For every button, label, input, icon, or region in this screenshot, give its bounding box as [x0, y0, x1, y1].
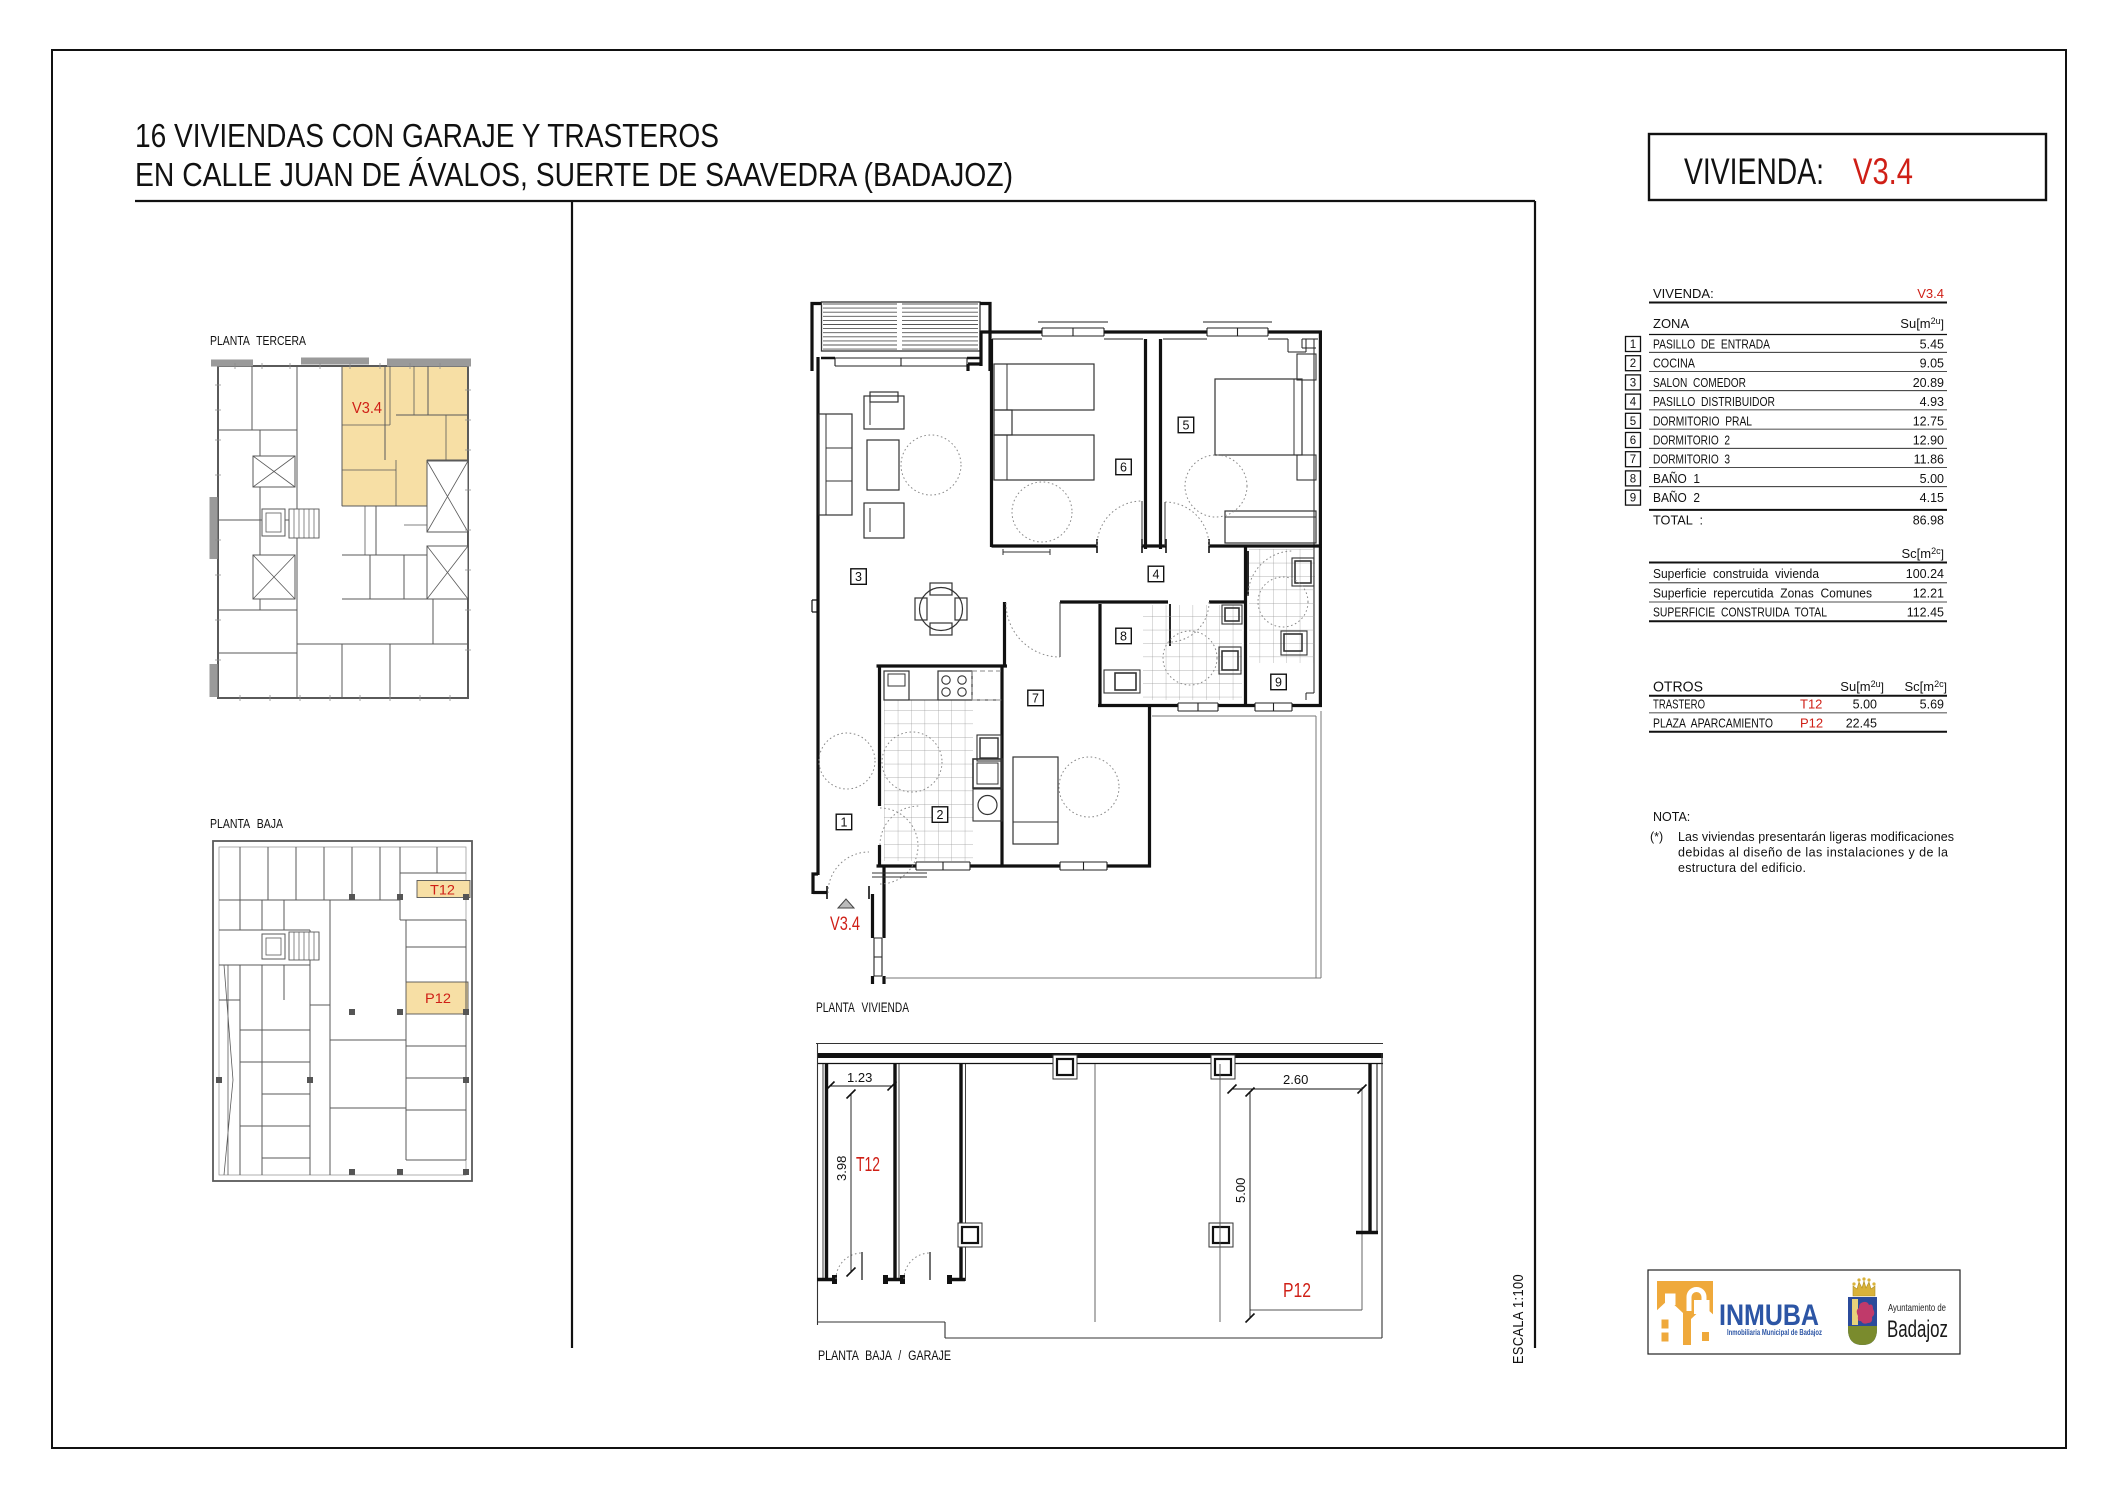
svg-text:7: 7	[1032, 692, 1039, 706]
svg-text:TOTAL :: TOTAL :	[1653, 513, 1703, 527]
svg-text:Badajoz: Badajoz	[1887, 1316, 1948, 1343]
svg-text:PLANTA BAJA: PLANTA BAJA	[210, 817, 284, 831]
svg-text:86.98: 86.98	[1913, 513, 1944, 527]
svg-text:1: 1	[1630, 339, 1636, 351]
svg-text:12.75: 12.75	[1913, 414, 1944, 428]
svg-text:TRASTERO: TRASTERO	[1653, 698, 1705, 712]
svg-text:20.89: 20.89	[1913, 376, 1944, 390]
svg-text:ESCALA 1:100: ESCALA 1:100	[1511, 1274, 1527, 1364]
svg-text:1.23: 1.23	[847, 1070, 872, 1085]
svg-text:Superficie repercutida Zonas: Superficie repercutida Zonas Comunes	[1653, 586, 1872, 600]
svg-text:5.45: 5.45	[1920, 338, 1944, 352]
svg-text:V3.4: V3.4	[830, 914, 860, 935]
svg-text:22.45: 22.45	[1846, 717, 1877, 731]
svg-text:COCINA: COCINA	[1653, 357, 1696, 371]
svg-text:DORMITORIO 2: DORMITORIO 2	[1653, 434, 1730, 448]
svg-text:16 VIVIENDAS CON GARAJE Y TRAS: 16 VIVIENDAS CON GARAJE Y TRASTEROS	[135, 118, 719, 155]
svg-text:2.60: 2.60	[1283, 1072, 1308, 1087]
svg-text:BAÑO 2: BAÑO 2	[1653, 491, 1700, 505]
svg-text:6: 6	[1120, 461, 1127, 475]
svg-text:5: 5	[1630, 416, 1636, 428]
svg-text:SUPERFICIE CONSTRUIDA TOTAL: SUPERFICIE CONSTRUIDA TOTAL	[1653, 606, 1827, 620]
svg-text:6: 6	[1630, 435, 1636, 447]
svg-text:estructura del edificio.: estructura del edificio.	[1678, 861, 1806, 875]
svg-text:V3.4: V3.4	[1853, 151, 1913, 192]
svg-text:5: 5	[1183, 419, 1190, 433]
svg-text:7: 7	[1630, 454, 1636, 466]
svg-text:9.05: 9.05	[1920, 357, 1944, 371]
svg-text:100.24: 100.24	[1906, 567, 1944, 581]
svg-text:8: 8	[1120, 630, 1127, 644]
svg-text:DORMITORIO 3: DORMITORIO 3	[1653, 453, 1730, 467]
svg-text:P12: P12	[1800, 716, 1823, 731]
svg-text:VIVIENDA:: VIVIENDA:	[1684, 151, 1824, 192]
svg-text:NOTA:: NOTA:	[1653, 810, 1690, 824]
svg-text:V3.4: V3.4	[1917, 286, 1944, 301]
svg-text:PASILLO DE ENTRADA: PASILLO DE ENTRADA	[1653, 338, 1771, 352]
svg-text:OTROS: OTROS	[1653, 679, 1703, 696]
svg-text:8: 8	[1630, 473, 1636, 485]
svg-text:T12: T12	[856, 1154, 880, 1176]
svg-text:debidas al diseño de las: debidas al diseño de las instalaciones y…	[1678, 846, 1948, 860]
svg-text:4.93: 4.93	[1920, 395, 1944, 409]
svg-text:V3.4: V3.4	[352, 400, 382, 417]
svg-text:12.21: 12.21	[1913, 586, 1944, 600]
svg-text:2: 2	[1630, 358, 1636, 370]
svg-text:Inmobiliaria Municipal de Bada: Inmobiliaria Municipal de Badajoz	[1727, 1328, 1822, 1337]
svg-text:SALON COMEDOR: SALON COMEDOR	[1653, 376, 1746, 390]
svg-text:Ayuntamiento de: Ayuntamiento de	[1888, 1302, 1946, 1314]
svg-text:9: 9	[1630, 493, 1636, 505]
svg-text:PLANTA BAJA / GARAJE: PLANTA BAJA / GARAJE	[818, 1348, 951, 1363]
svg-text:3.98: 3.98	[834, 1156, 849, 1181]
svg-text:5.00: 5.00	[1233, 1178, 1248, 1203]
svg-text:PASILLO DISTRIBUIDOR: PASILLO DISTRIBUIDOR	[1653, 395, 1775, 409]
svg-text:EN CALLE JUAN DE ÁVALOS, SUERT: EN CALLE JUAN DE ÁVALOS, SUERTE DE SAAVE…	[135, 157, 1013, 194]
svg-text:VIVENDA:: VIVENDA:	[1653, 286, 1714, 301]
svg-text:5.69: 5.69	[1920, 698, 1944, 712]
svg-text:Las viviendas presentarán l: Las viviendas presentarán ligeras modifi…	[1678, 830, 1954, 844]
svg-text:3: 3	[1630, 377, 1636, 389]
svg-text:4: 4	[1153, 568, 1160, 582]
svg-text:PLANTA TERCERA: PLANTA TERCERA	[210, 334, 307, 348]
svg-text:9: 9	[1275, 676, 1282, 690]
svg-text:BAÑO 1: BAÑO 1	[1653, 472, 1700, 486]
svg-text:PLANTA VIVIENDA: PLANTA VIVIENDA	[816, 1000, 909, 1015]
svg-text:T12: T12	[1800, 697, 1822, 712]
svg-text:PLAZA APARCAMIENTO: PLAZA APARCAMIENTO	[1653, 717, 1773, 731]
svg-text:4: 4	[1630, 397, 1637, 409]
svg-text:5.00: 5.00	[1853, 698, 1877, 712]
svg-text:12.90: 12.90	[1913, 434, 1944, 448]
svg-text:DORMITORIO PRAL: DORMITORIO PRAL	[1653, 414, 1752, 428]
svg-text:(*): (*)	[1650, 830, 1663, 844]
svg-text:T12: T12	[430, 883, 455, 898]
svg-text:2: 2	[937, 808, 944, 822]
svg-text:Superficie construida vivien: Superficie construida vivienda	[1653, 567, 1819, 581]
svg-text:112.45: 112.45	[1907, 606, 1944, 620]
svg-text:ZONA: ZONA	[1653, 316, 1689, 331]
svg-text:5.00: 5.00	[1920, 472, 1944, 486]
svg-text:1: 1	[841, 816, 848, 830]
svg-text:P12: P12	[425, 991, 451, 1006]
svg-text:P12: P12	[1283, 1280, 1311, 1302]
svg-text:11.86: 11.86	[1914, 453, 1944, 467]
svg-text:3: 3	[855, 570, 862, 584]
svg-text:4.15: 4.15	[1920, 491, 1944, 505]
